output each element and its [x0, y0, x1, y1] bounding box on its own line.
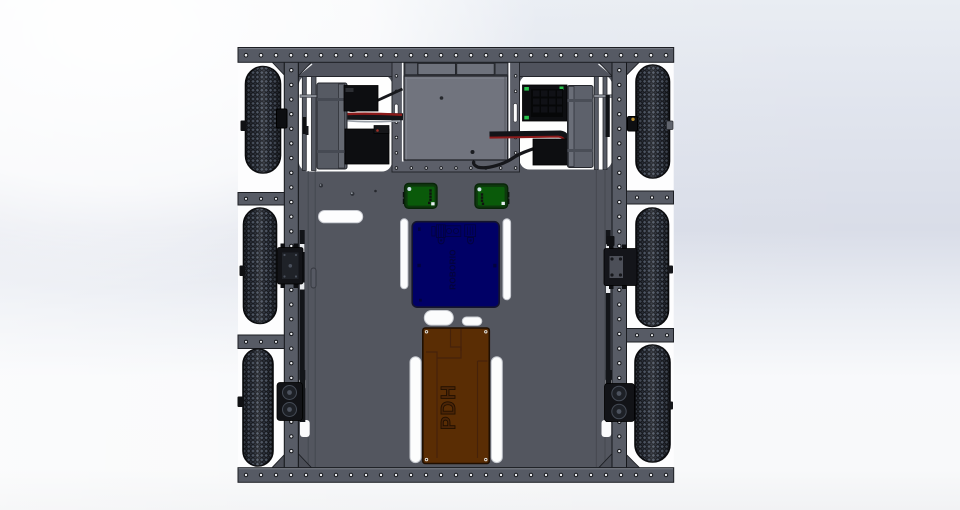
svg-text:ROBORIO: ROBORIO — [449, 249, 458, 290]
svg-text:PDH: PDH — [438, 384, 460, 430]
